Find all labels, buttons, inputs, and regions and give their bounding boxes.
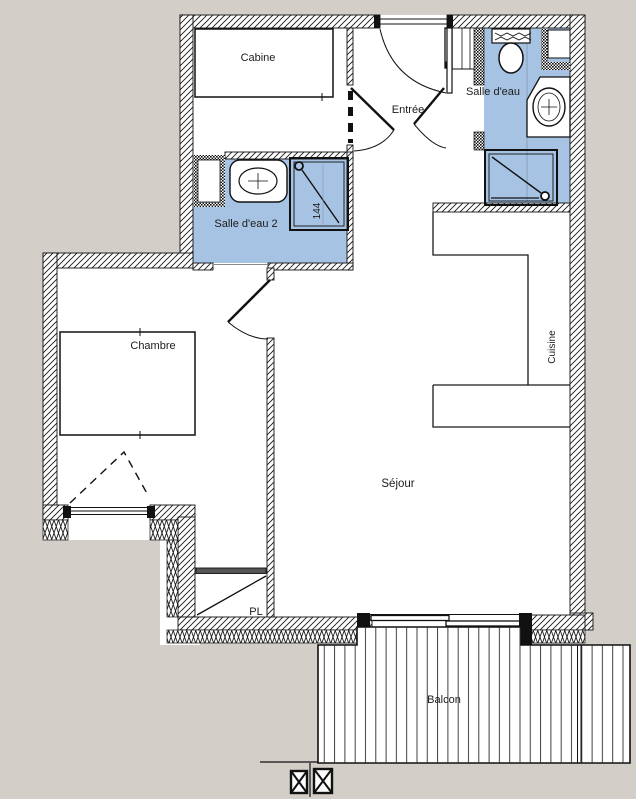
balcony-decking [318,627,630,763]
sliding-panel [371,616,449,621]
label-sejour: Séjour [381,478,414,490]
door-leaf [447,28,452,93]
toilet-icon [499,43,523,73]
label-shower-dim: 144 [312,202,323,219]
label-salle-deau-2: Salle d'eau 2 [214,218,277,230]
label-cuisine: Cuisine [547,330,558,364]
label-placard: PL [249,606,262,618]
label-chambre: Chambre [130,340,175,352]
duct-box [548,30,570,58]
closet-shelf [196,568,266,574]
label-cabine: Cabine [241,52,276,64]
label-balcon: Balcon [427,694,461,706]
sliding-panel [446,621,522,626]
floor-plan-canvas: Cabine Entrée Salle d'eau Salle d'eau 2 … [0,0,636,799]
floor-plan-drawing: Cabine Entrée Salle d'eau Salle d'eau 2 … [0,0,636,799]
label-salle-deau: Salle d'eau [466,86,520,98]
label-entree: Entrée [392,104,424,116]
